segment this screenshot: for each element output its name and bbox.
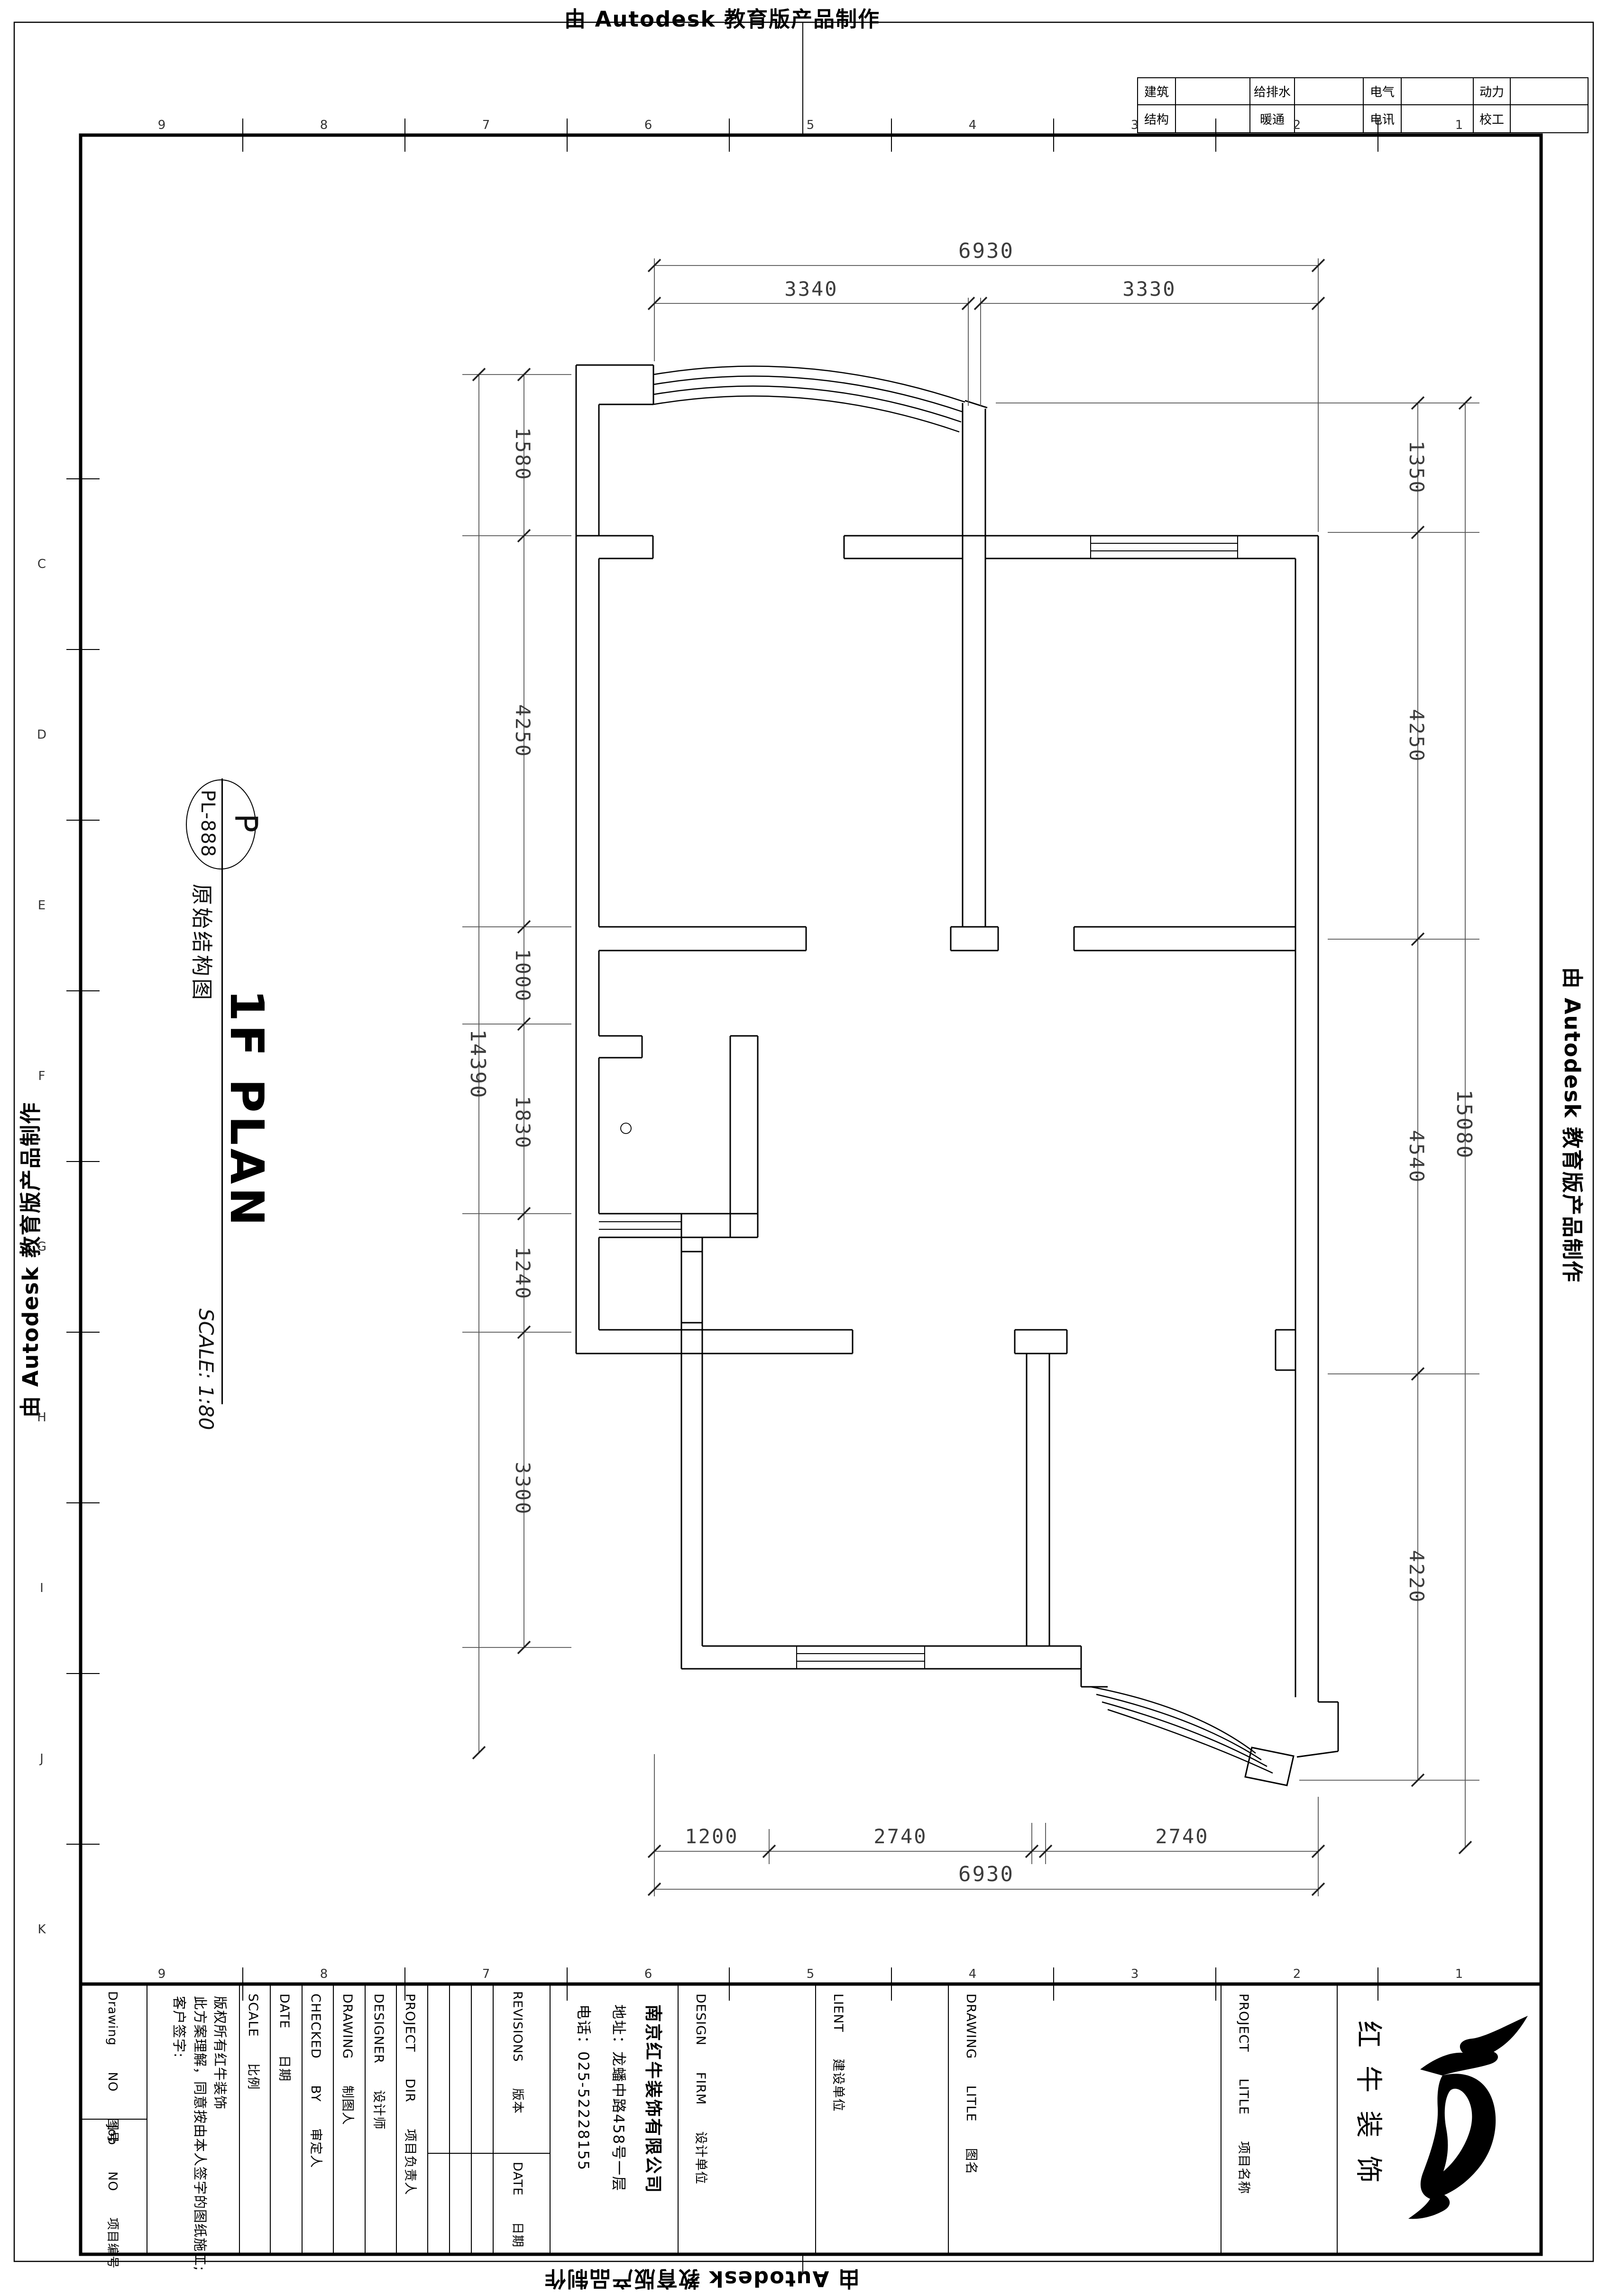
grid-col-label: 4 — [969, 1967, 977, 1981]
dim-right-seg: 4250 — [1405, 709, 1428, 762]
grid-row-label: K — [37, 1922, 46, 1937]
titleblock-date: DATE 日期 — [276, 1994, 295, 2082]
grid-row-label: J — [39, 1752, 44, 1766]
company-name: 南京红牛装饰有限公司 — [642, 2004, 668, 2194]
grid-col-label: 1 — [1455, 1967, 1463, 1981]
grid-col-label: 8 — [320, 118, 328, 132]
grid-col-label: 9 — [158, 1967, 166, 1981]
dim-right-seg: 1350 — [1405, 440, 1428, 494]
dim-left-seg: 1000 — [511, 949, 534, 1002]
dim-top-seg: 3340 — [784, 277, 838, 301]
bull-horn-icon — [1420, 2016, 1528, 2076]
dimension-lines — [462, 258, 1479, 1896]
inner-border — [81, 135, 1541, 2254]
grid-col-label: 3 — [1131, 1967, 1139, 1981]
grid-row-label: C — [37, 557, 46, 571]
bull-body-icon — [1408, 2074, 1496, 2219]
grid-col-label: 5 — [807, 1967, 815, 1981]
dim-left-seg: 1830 — [511, 1096, 534, 1149]
titleblock-project-dir: PROJECT DIR 项目负责人 — [402, 1994, 421, 2195]
dim-left-seg: 3300 — [511, 1462, 534, 1515]
grid-col-label: 5 — [807, 118, 815, 132]
titleblock-drawing-no: Drawing NO 图号 — [105, 1991, 122, 2144]
dim-left-seg: 1580 — [511, 427, 534, 481]
plan-walls — [576, 365, 1338, 1757]
titleblock-checked-by: CHECKED BY 审定人 — [308, 1994, 326, 2168]
grid-col-label: 6 — [644, 1967, 652, 1981]
outer-border — [14, 22, 1593, 2261]
grid-col-label: 7 — [482, 1967, 490, 1981]
sheet-linework: 9 8 7 6 5 4 3 2 1 9 8 7 6 5 4 3 2 1 C D … — [0, 0, 1607, 2296]
grid-col-label: 2 — [1293, 118, 1301, 132]
disclaimer-line: 此方案理解，同意按由本人签字的图纸施工; — [191, 1996, 211, 2271]
plan-windows — [599, 536, 1238, 1669]
dim-left-seg: 4250 — [511, 704, 534, 758]
bay-window-end-block — [1245, 1747, 1294, 1785]
disclaimer-line: 版权所有红牛装饰 — [211, 1996, 231, 2110]
dimension-ticks — [473, 259, 1471, 1895]
titleblock-design-firm: DESIGN FIRM 设计单位 — [693, 1994, 711, 2185]
dim-right-seg: 4220 — [1405, 1550, 1428, 1603]
grid-ticks — [66, 119, 1378, 2001]
company-address: 地址：龙蟠中路458号一层 — [609, 2004, 631, 2192]
company-phone: 电话：025-52228155 — [574, 2004, 596, 2171]
grid-col-label: 4 — [969, 118, 977, 132]
titleblock-scale: SCALE 比例 — [245, 1994, 264, 2090]
grid-row-label: I — [40, 1581, 44, 1595]
grid-col-label: 6 — [644, 118, 652, 132]
grid-row-label: G — [37, 1240, 46, 1254]
titleblock-job-no: Job NO 项目编号 — [105, 2125, 122, 2269]
grid-col-label: 2 — [1293, 1967, 1301, 1981]
titleblock-project-title: PROJECT LITLE 项目名称 — [1236, 1994, 1254, 2194]
dim-bottom-total: 6930 — [958, 1862, 1014, 1886]
redbull-logo-icon — [1399, 2015, 1536, 2223]
dim-right-seg: 4540 — [1405, 1130, 1428, 1183]
floor-drain — [621, 1123, 631, 1134]
grid-row-label: H — [37, 1410, 46, 1425]
dim-bottom-seg: 2740 — [1155, 1825, 1209, 1848]
floor-plan — [576, 365, 1338, 1785]
dimensions: 6930 3340 3330 1200 2740 2740 6930 1580 … — [462, 239, 1479, 1896]
dim-right-total: 15080 — [1452, 1089, 1476, 1159]
titleblock-designer: DESIGNER 设计师 — [371, 1994, 389, 2130]
titleblock-client: LIENT 建设单位 — [830, 1994, 849, 2112]
grid-col-label: 7 — [482, 118, 490, 132]
disclaimer-line: 客户签字: — [170, 1996, 190, 2058]
title-block-grid — [81, 1984, 1541, 2254]
dim-left-seg: 1240 — [511, 1246, 534, 1300]
grid-col-label: 1 — [1455, 118, 1463, 132]
dim-bottom-seg: 2740 — [873, 1825, 927, 1848]
titleblock-rev-date: DATE 日期 — [510, 2162, 527, 2248]
grid-col-label: 3 — [1131, 118, 1139, 132]
titleblock-revisions: REVISIONS 版本 — [510, 1991, 527, 2114]
dim-top-total: 6930 — [958, 239, 1014, 263]
grid-row-label: F — [38, 1069, 46, 1083]
logo-name: 红牛装饰 — [1351, 2021, 1390, 2201]
dim-bottom-seg: 1200 — [685, 1825, 738, 1848]
titleblock-drawing-by: DRAWING 制图人 — [340, 1994, 358, 2125]
grid-row-label: E — [38, 898, 46, 913]
titleblock-drawing-title: DRAWING LITLE 图名 — [963, 1994, 982, 2175]
grid-col-label: 9 — [158, 118, 166, 132]
grid-row-label: D — [37, 728, 46, 742]
grid-col-label: 8 — [320, 1967, 328, 1981]
dim-top-seg: 3330 — [1122, 277, 1176, 301]
dim-left-total: 14390 — [466, 1029, 490, 1099]
